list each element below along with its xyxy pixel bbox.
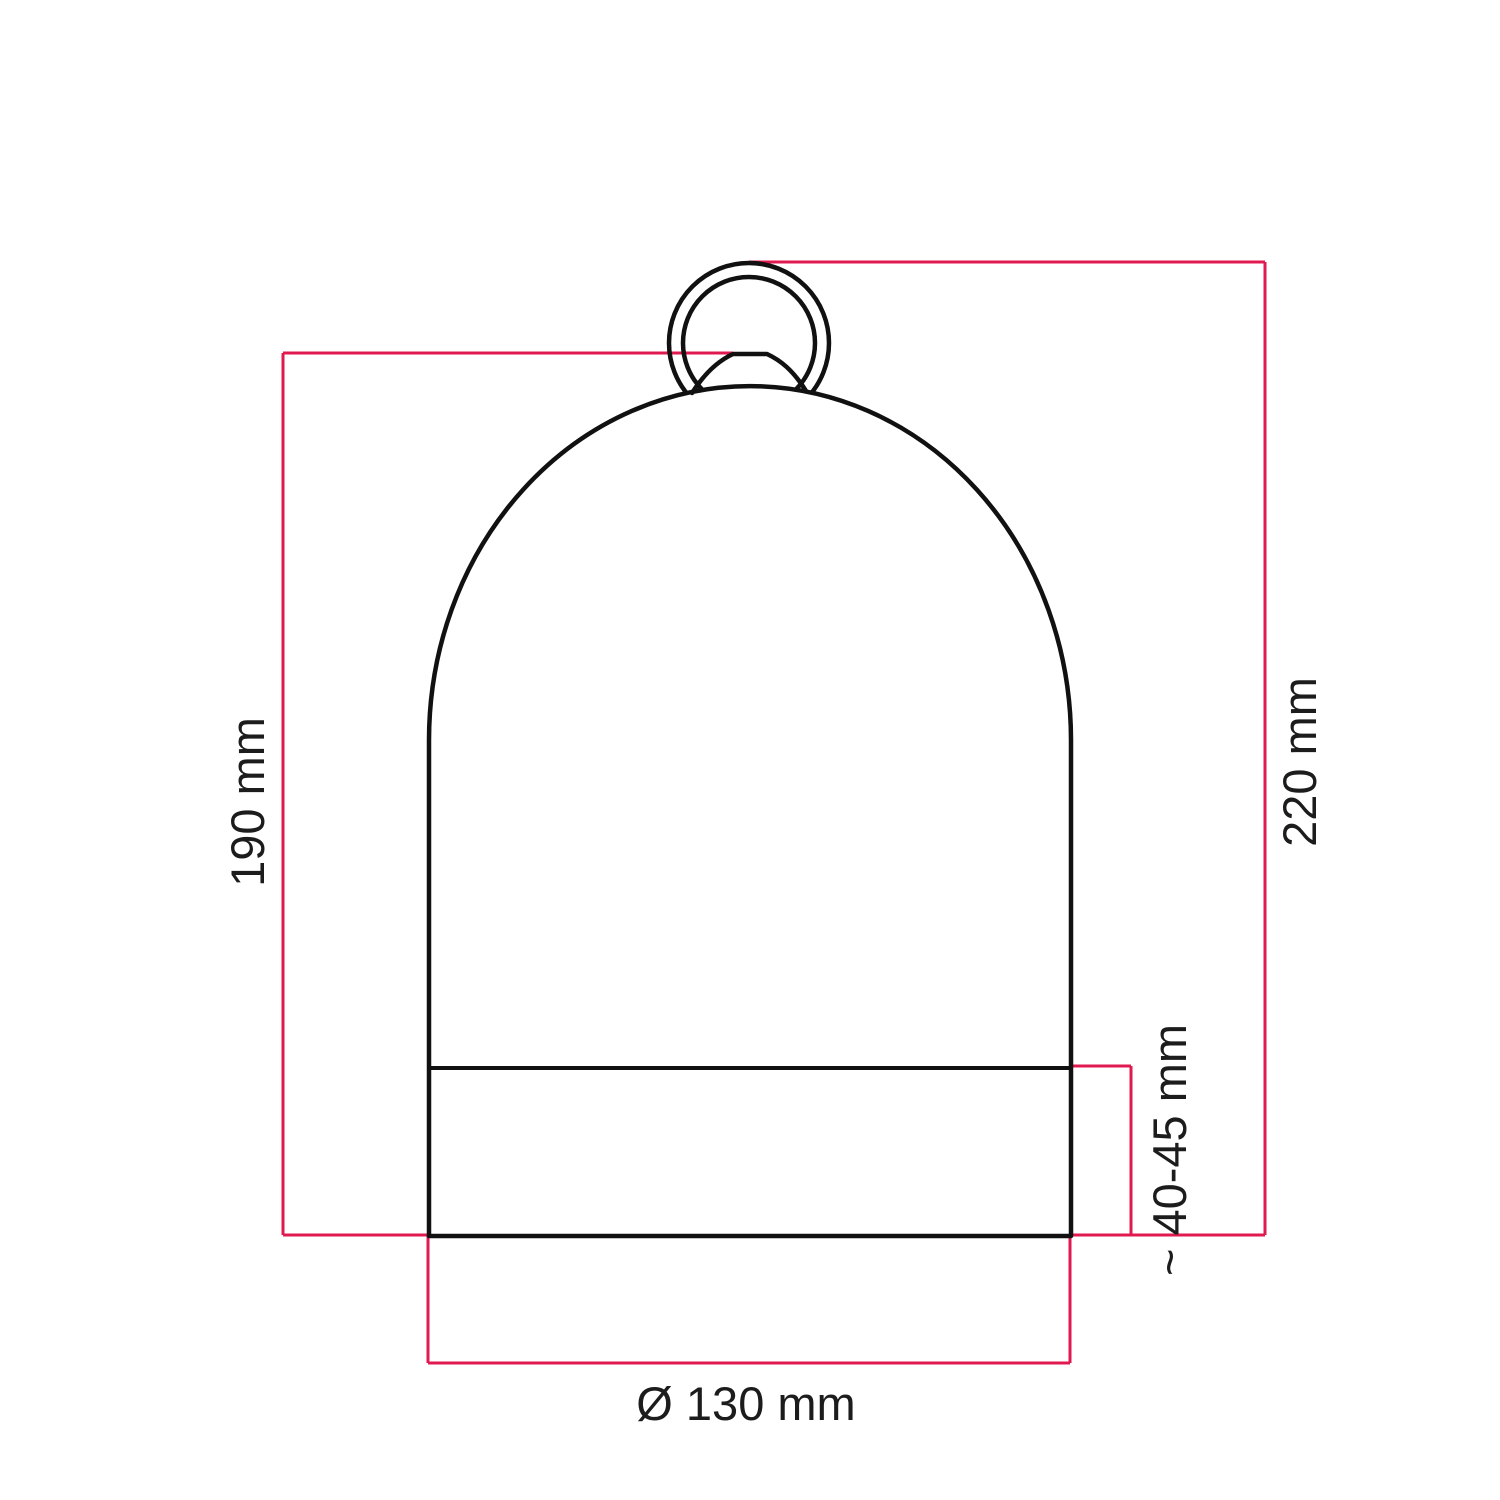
diagram-canvas: 190 mm 220 mm ~ 40-45 mm Ø 130 mm xyxy=(0,0,1500,1500)
bell-outline xyxy=(429,263,1071,1236)
label-total-height: 220 mm xyxy=(1273,677,1326,847)
label-body-height: 190 mm xyxy=(221,717,274,887)
bell-body-outline xyxy=(429,386,1071,1236)
label-socket-height: ~ 40-45 mm xyxy=(1143,1024,1196,1276)
label-diameter: Ø 130 mm xyxy=(636,1377,855,1430)
bell-lampshade-dimension-diagram: 190 mm 220 mm ~ 40-45 mm Ø 130 mm xyxy=(0,0,1500,1500)
